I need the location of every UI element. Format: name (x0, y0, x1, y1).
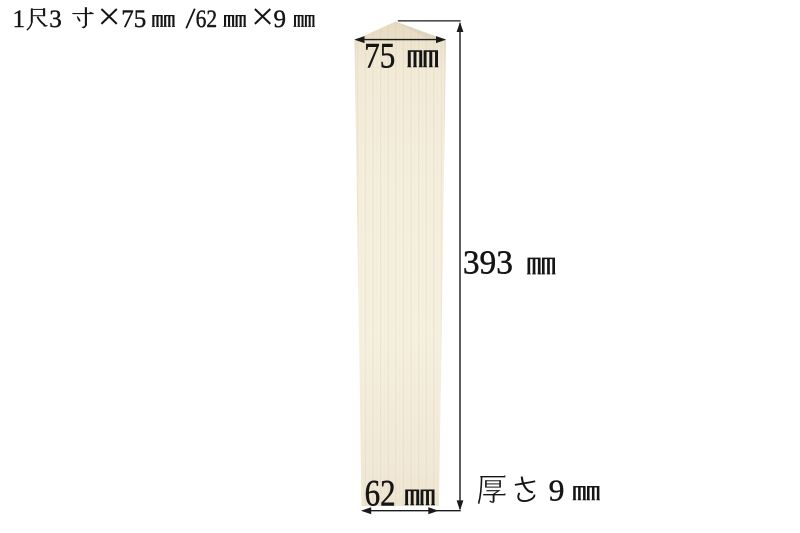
svg-text:62: 62 (196, 6, 218, 33)
svg-text:75: 75 (364, 35, 395, 75)
svg-text:393: 393 (463, 245, 513, 282)
svg-text:9: 9 (274, 6, 287, 33)
svg-text:3: 3 (49, 6, 62, 33)
svg-text:62: 62 (365, 472, 396, 513)
svg-text:9: 9 (549, 472, 565, 507)
svg-text:1: 1 (13, 6, 26, 33)
svg-text:75: 75 (121, 6, 146, 33)
